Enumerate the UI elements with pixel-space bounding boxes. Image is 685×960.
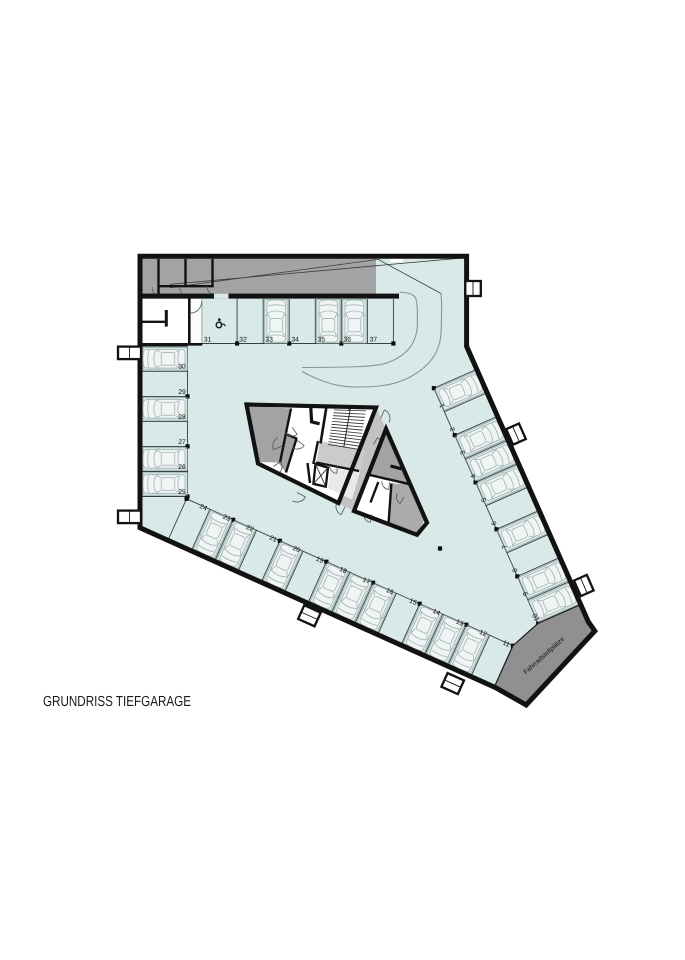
svg-text:25: 25 bbox=[178, 489, 186, 496]
svg-text:34: 34 bbox=[291, 337, 299, 344]
svg-text:30: 30 bbox=[178, 364, 186, 371]
svg-text:33: 33 bbox=[265, 337, 273, 344]
svg-text:36: 36 bbox=[344, 337, 352, 344]
svg-text:29: 29 bbox=[178, 389, 186, 396]
svg-text:27: 27 bbox=[178, 439, 186, 446]
svg-text:31: 31 bbox=[204, 337, 212, 344]
svg-text:37: 37 bbox=[370, 337, 378, 344]
svg-text:GRUNDRISS TIEFGARAGE: GRUNDRISS TIEFGARAGE bbox=[43, 694, 191, 710]
svg-text:28: 28 bbox=[178, 414, 186, 421]
svg-text:26: 26 bbox=[178, 464, 186, 471]
svg-text:35: 35 bbox=[318, 337, 326, 344]
svg-text:32: 32 bbox=[239, 337, 247, 344]
